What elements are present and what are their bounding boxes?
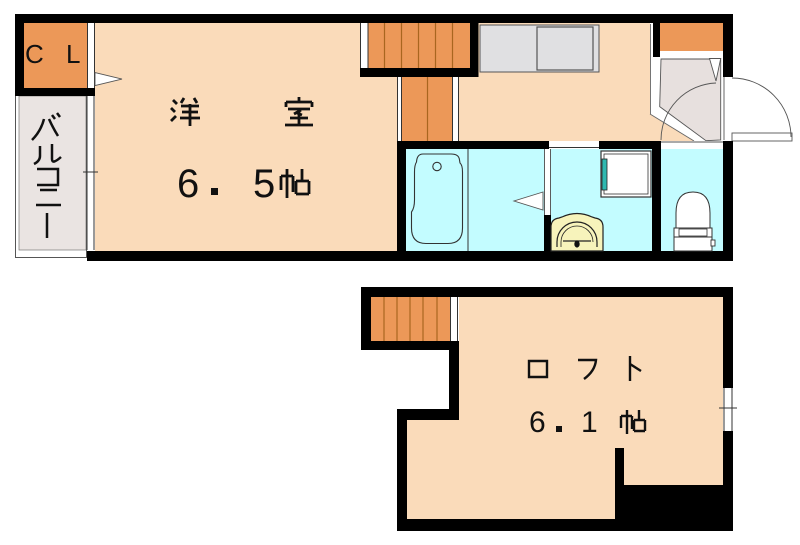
- svg-text:6: 6: [177, 162, 199, 206]
- svg-text:L: L: [66, 39, 80, 69]
- svg-text:1: 1: [581, 406, 598, 439]
- svg-text:C: C: [25, 39, 44, 69]
- svg-text:5: 5: [253, 162, 275, 206]
- svg-text:6: 6: [529, 406, 546, 439]
